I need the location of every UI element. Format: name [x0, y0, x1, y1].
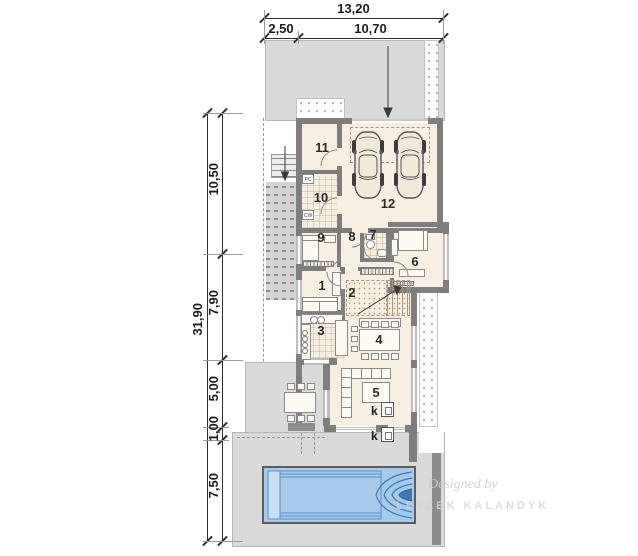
pool	[262, 466, 416, 524]
room-label-11: 11	[311, 140, 333, 155]
wall-bay-north	[388, 222, 449, 227]
bed-pillow-line	[423, 230, 424, 251]
garage-door-line	[352, 119, 428, 121]
wall-9-south	[296, 267, 326, 271]
room-label-9: 9	[310, 230, 332, 245]
dim-left-seg2: 7,90	[206, 290, 221, 315]
room-label-6: 6	[404, 254, 426, 269]
chair-icon	[361, 321, 369, 328]
chair-icon	[361, 353, 369, 360]
wall-north-left	[296, 118, 352, 124]
wall-garage-east	[437, 118, 443, 228]
dim-line-top-segments	[264, 38, 443, 39]
chair-icon	[391, 321, 399, 328]
car-icon	[351, 129, 385, 201]
watermark-author: LESZEK KALANDYK	[396, 500, 549, 512]
chair-icon	[381, 353, 389, 360]
glass-south-1	[336, 427, 376, 430]
room-label-12: 12	[377, 196, 399, 211]
outdoor-chair-icon	[287, 383, 295, 390]
wall-pier-terrace	[409, 432, 417, 462]
wall-kitchen-corner	[329, 358, 337, 365]
outdoor-chair-icon	[307, 383, 315, 390]
room-label-10: 10	[310, 190, 332, 205]
walkway-hatch	[266, 182, 296, 300]
water-heater-box: CW	[302, 210, 314, 220]
outdoor-chair-icon	[307, 415, 315, 422]
room-label-7: 7	[362, 227, 384, 242]
dim-left-seg4: 1,00	[206, 416, 221, 441]
window-living-west	[323, 390, 330, 418]
sink-icon	[377, 249, 387, 257]
dim-line-left-segments	[222, 113, 223, 541]
car-icon	[393, 129, 427, 201]
room-label-8: 8	[341, 229, 363, 244]
corner-sofa-side	[341, 368, 352, 418]
gravel-path	[419, 287, 438, 427]
extension-line	[203, 254, 243, 255]
extension-line	[203, 113, 243, 114]
chair-icon	[391, 353, 399, 360]
door-gap-11	[337, 148, 342, 166]
watermark-credit: Designed by	[428, 477, 498, 493]
roof-overhang-line	[237, 437, 325, 438]
wardrobe-icon	[332, 272, 341, 296]
stove-burner-icon	[302, 348, 308, 354]
wall-south-pier-1	[324, 425, 336, 432]
outdoor-chair-icon	[297, 415, 305, 422]
dim-left-seg5: 7,50	[206, 473, 221, 498]
wall-south-pier-3	[405, 425, 417, 432]
window-bay	[443, 234, 449, 280]
extension-line	[203, 360, 243, 361]
heat-pump-box: PC	[302, 174, 314, 184]
fireplace-icon	[381, 427, 394, 442]
outdoor-table	[284, 392, 316, 413]
extension-line	[443, 10, 444, 44]
dim-left-seg1: 10,50	[206, 163, 221, 196]
terrace-notch	[419, 432, 444, 453]
chair-icon	[381, 321, 389, 328]
outdoor-chair-icon	[297, 383, 305, 390]
room-label-5: 5	[365, 385, 387, 400]
wall-7-south	[360, 258, 390, 262]
dim-left-total: 31,90	[190, 303, 205, 336]
room-label-1: 1	[311, 278, 333, 293]
sofa-icon	[302, 297, 338, 312]
fireplace-icon	[381, 402, 394, 417]
stool-icon	[351, 326, 358, 332]
dresser-icon	[399, 269, 425, 277]
outdoor-chair-icon	[287, 415, 295, 422]
grill-bench-icon	[288, 423, 315, 431]
terrace-wall	[432, 453, 441, 545]
window-east-2	[411, 368, 417, 412]
pergola-post-line-1	[301, 433, 302, 454]
driveway-area	[265, 40, 445, 121]
chair-icon	[371, 353, 379, 360]
radiator-icon	[360, 268, 394, 275]
extension-line	[298, 31, 299, 44]
extension-line	[264, 10, 265, 44]
dim-left-seg3: 5,00	[206, 376, 221, 401]
door-gap-10	[337, 196, 342, 214]
room-label-3: 3	[310, 323, 332, 338]
room-label-4: 4	[368, 332, 390, 347]
kitchen-island	[335, 320, 348, 356]
fireplace-label-inner: k	[371, 404, 378, 418]
stool-icon	[351, 346, 358, 352]
stool-icon	[351, 336, 358, 342]
radiator-icon	[302, 261, 334, 267]
floor-plan: PC CW k k	[0, 0, 638, 556]
room-label-2: 2	[341, 285, 363, 300]
extension-line	[203, 541, 243, 542]
sofa-back-line	[302, 301, 338, 302]
pergola-post-line-2	[314, 433, 315, 454]
paving-strip-vertical	[424, 40, 439, 119]
dim-top-seg2: 10,70	[298, 21, 443, 36]
fireplace-label-outer: k	[371, 429, 378, 443]
window-east-1	[411, 326, 417, 360]
dim-line-top-total	[264, 18, 443, 19]
chair-icon	[371, 321, 379, 328]
exterior-stairs-icon	[271, 154, 298, 178]
desk-icon	[391, 239, 398, 256]
paving-strip-horizontal	[296, 98, 345, 119]
sofa-cushion-line	[319, 301, 320, 312]
stairs-icon	[386, 280, 410, 316]
dim-top-total: 13,20	[264, 1, 443, 16]
